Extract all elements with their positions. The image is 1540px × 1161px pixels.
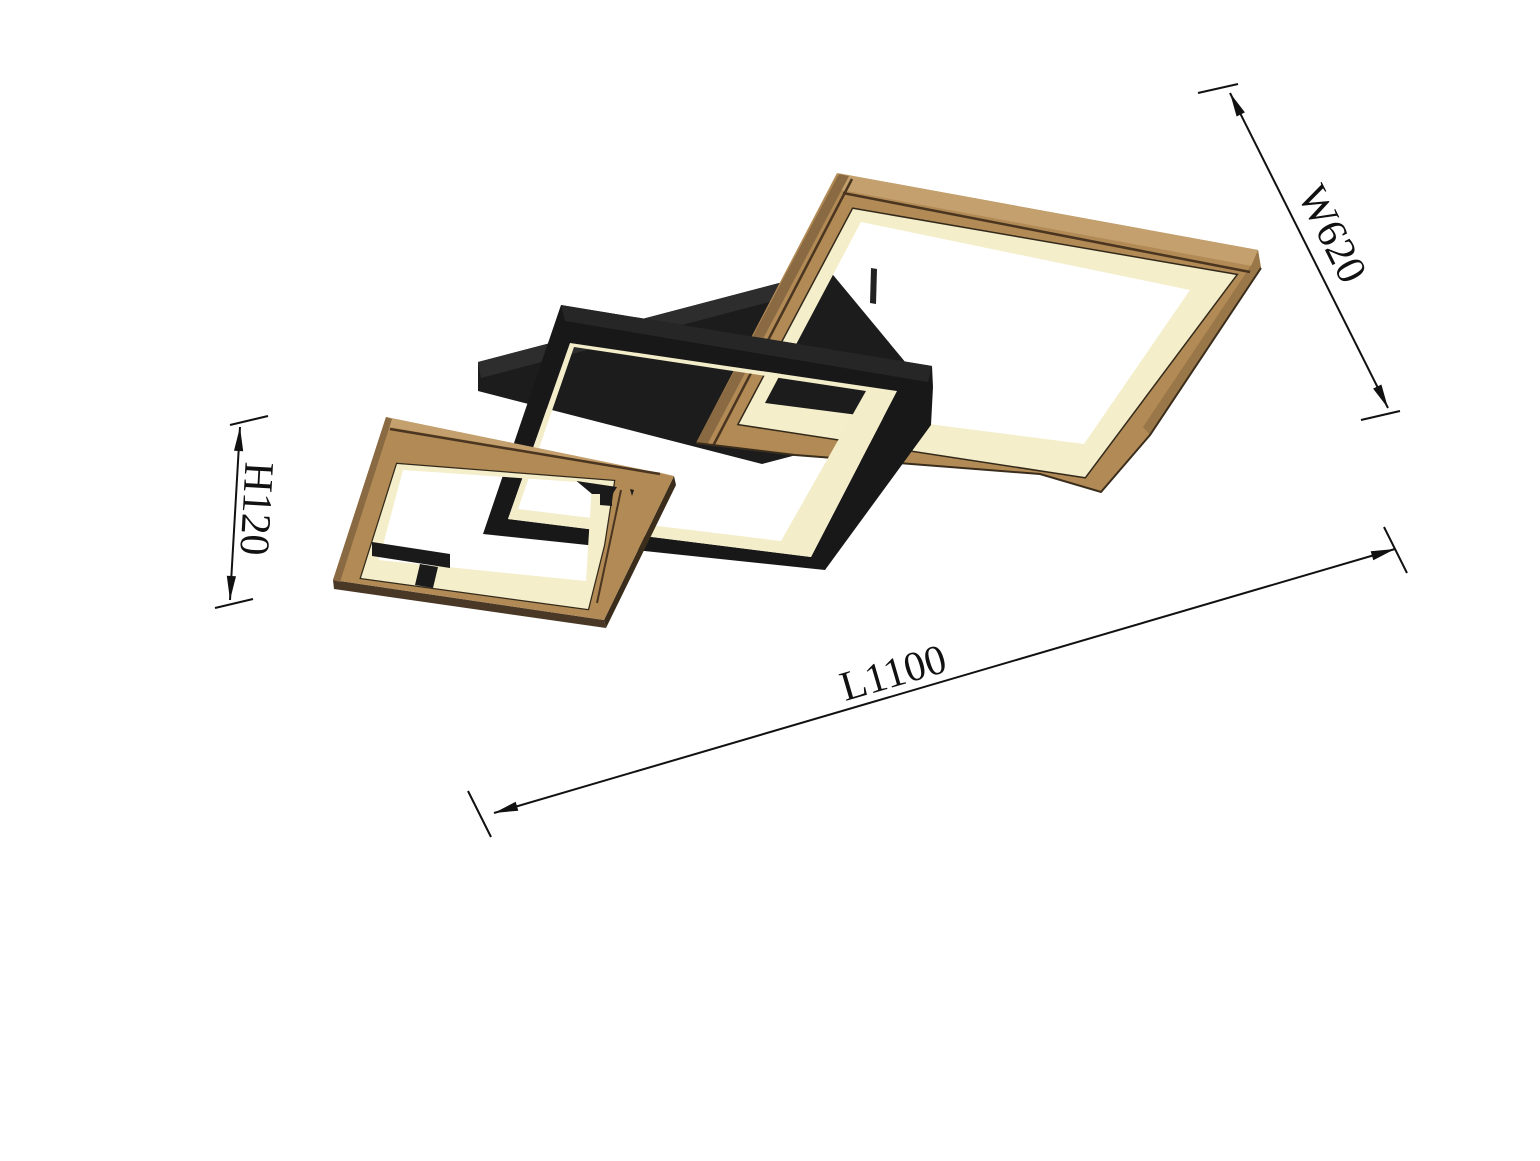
svg-text:H120: H120 <box>230 461 281 557</box>
